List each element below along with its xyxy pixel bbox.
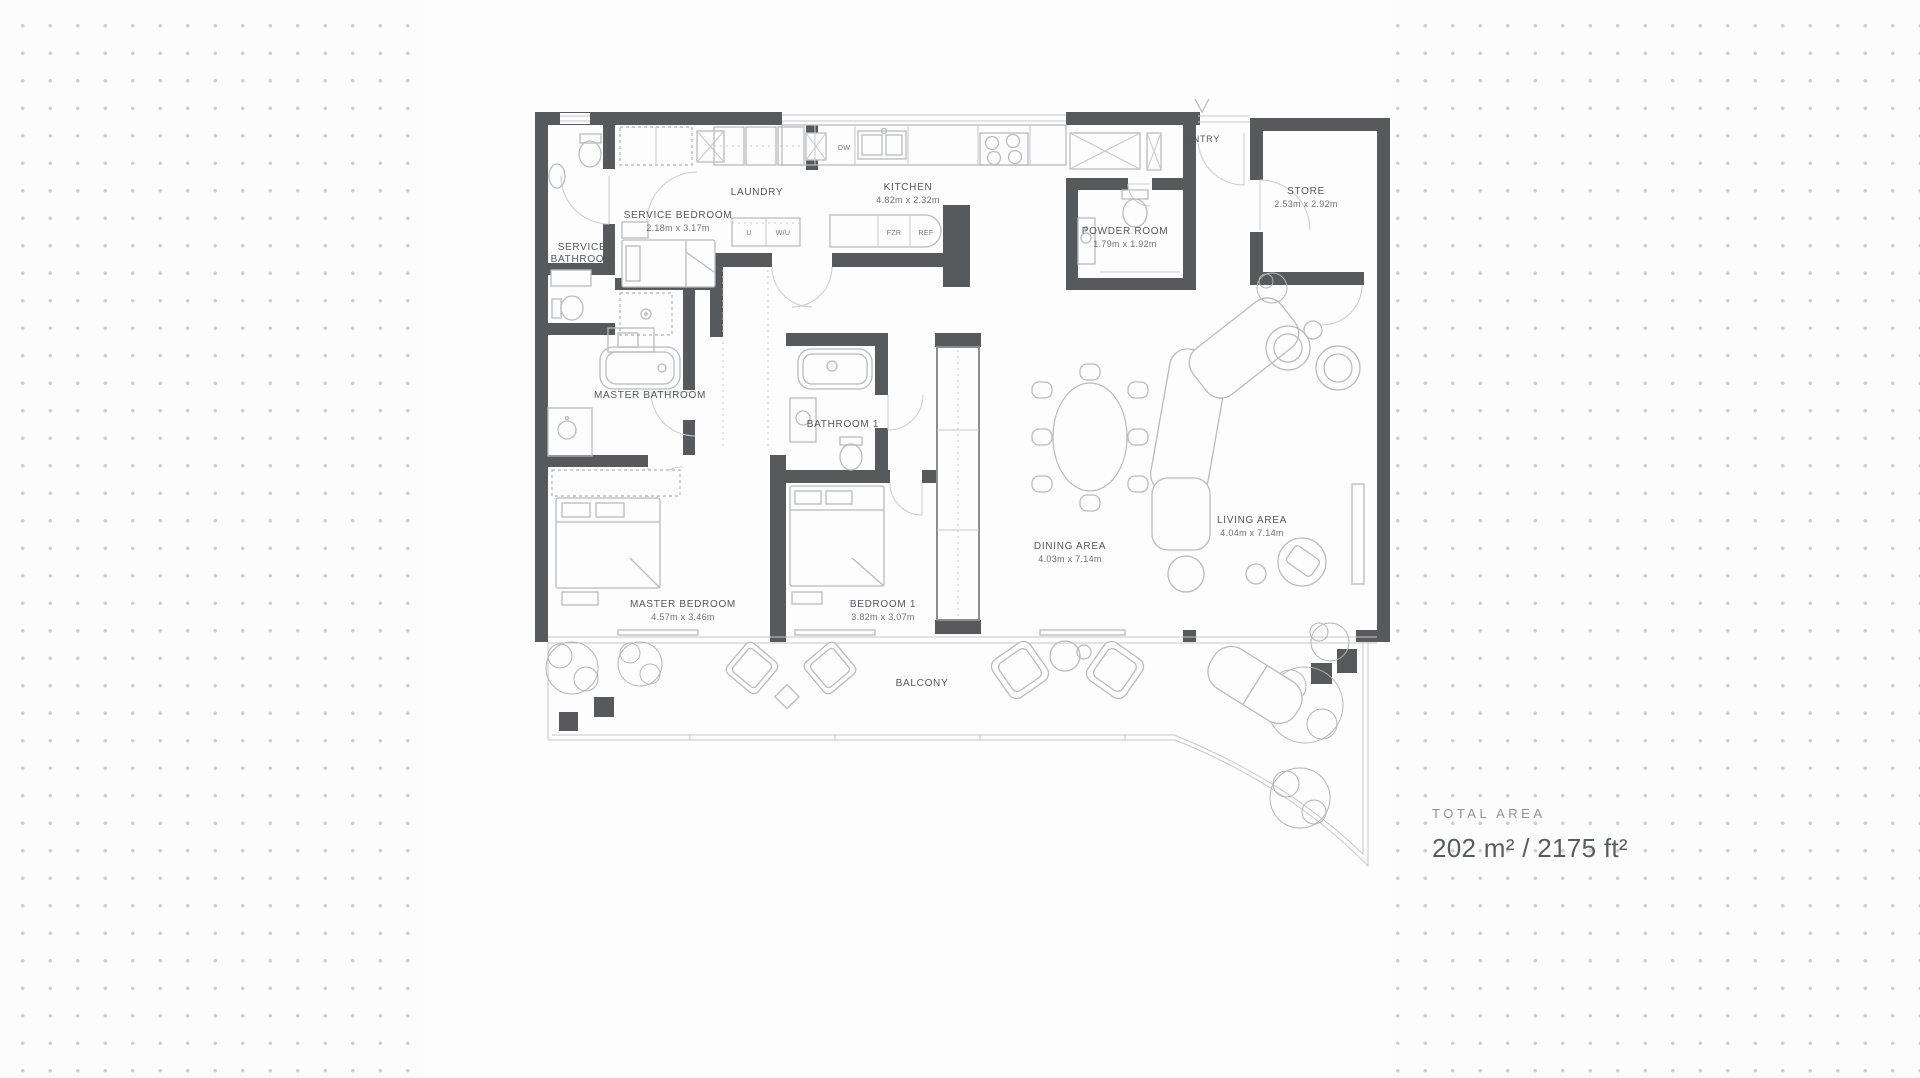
label-entry: ENTRY (1186, 134, 1220, 144)
total-area-block: TOTAL AREA 202 m² / 2175 ft² (1432, 806, 1628, 864)
label-bedroom-1: BEDROOM 1 (850, 599, 916, 610)
label-service-bathroom: SERVICE (558, 242, 607, 253)
dims-powder-room: 1.79m x 1.92m (1093, 239, 1156, 249)
total-area-value: 202 m² / 2175 ft² (1432, 833, 1628, 864)
dims-dining-area: 4.03m x 7.14m (1038, 554, 1101, 564)
bathroom-1-fixtures (790, 349, 872, 470)
label-dining-area: DINING AREA (1034, 541, 1106, 552)
label-balcony: BALCONY (896, 678, 949, 689)
dims-store: 2.53m x 2.92m (1274, 199, 1337, 209)
label-living-area: LIVING AREA (1217, 515, 1287, 526)
bedroom-1-furniture (790, 486, 884, 604)
label-washer-unit: W/U (776, 230, 791, 237)
balcony (546, 623, 1368, 866)
label-bathroom-1: BATHROOM 1 (807, 419, 879, 430)
dining-furniture (1032, 364, 1148, 511)
dims-service-bedroom: 2.18m x 3.17m (646, 223, 709, 233)
master-bedroom-furniture (552, 470, 680, 605)
label-utility: U (746, 230, 751, 237)
dims-bedroom-1: 3.82m x 3.07m (851, 612, 914, 622)
dims-master-bedroom: 4.57m x 3.46m (651, 612, 714, 622)
label-service-bathroom-2: BATHROOM (551, 254, 614, 265)
master-bathroom-fixtures (548, 293, 680, 456)
label-powder-room: POWDER ROOM (1082, 226, 1169, 237)
entry-arrow (1195, 99, 1209, 112)
label-kitchen: KITCHEN (884, 182, 933, 193)
label-master-bathroom: MASTER BATHROOM (594, 390, 706, 401)
service-shafts (697, 131, 1161, 170)
dims-kitchen: 4.82m x 2.32m (876, 195, 939, 205)
floor-plan-drawing: SERVICE BATHROOM SERVICE BEDROOM 2.18m x… (0, 0, 1920, 1078)
floor-plan-page: { "summary": { "title": "TOTAL AREA", "v… (0, 0, 1920, 1078)
dims-living-area: 4.04m x 7.14m (1220, 528, 1283, 538)
label-master-bedroom: MASTER BEDROOM (630, 599, 736, 610)
label-refrigerator: REF (919, 230, 934, 237)
total-area-label: TOTAL AREA (1432, 806, 1628, 821)
label-dishwasher: DW (838, 145, 850, 152)
label-laundry: LAUNDRY (731, 187, 784, 198)
label-service-bedroom: SERVICE BEDROOM (624, 210, 733, 221)
label-freezer: FZR (887, 230, 902, 237)
bedroom1-closet-column (937, 347, 979, 620)
label-store: STORE (1287, 186, 1325, 197)
living-furniture (1148, 273, 1364, 592)
